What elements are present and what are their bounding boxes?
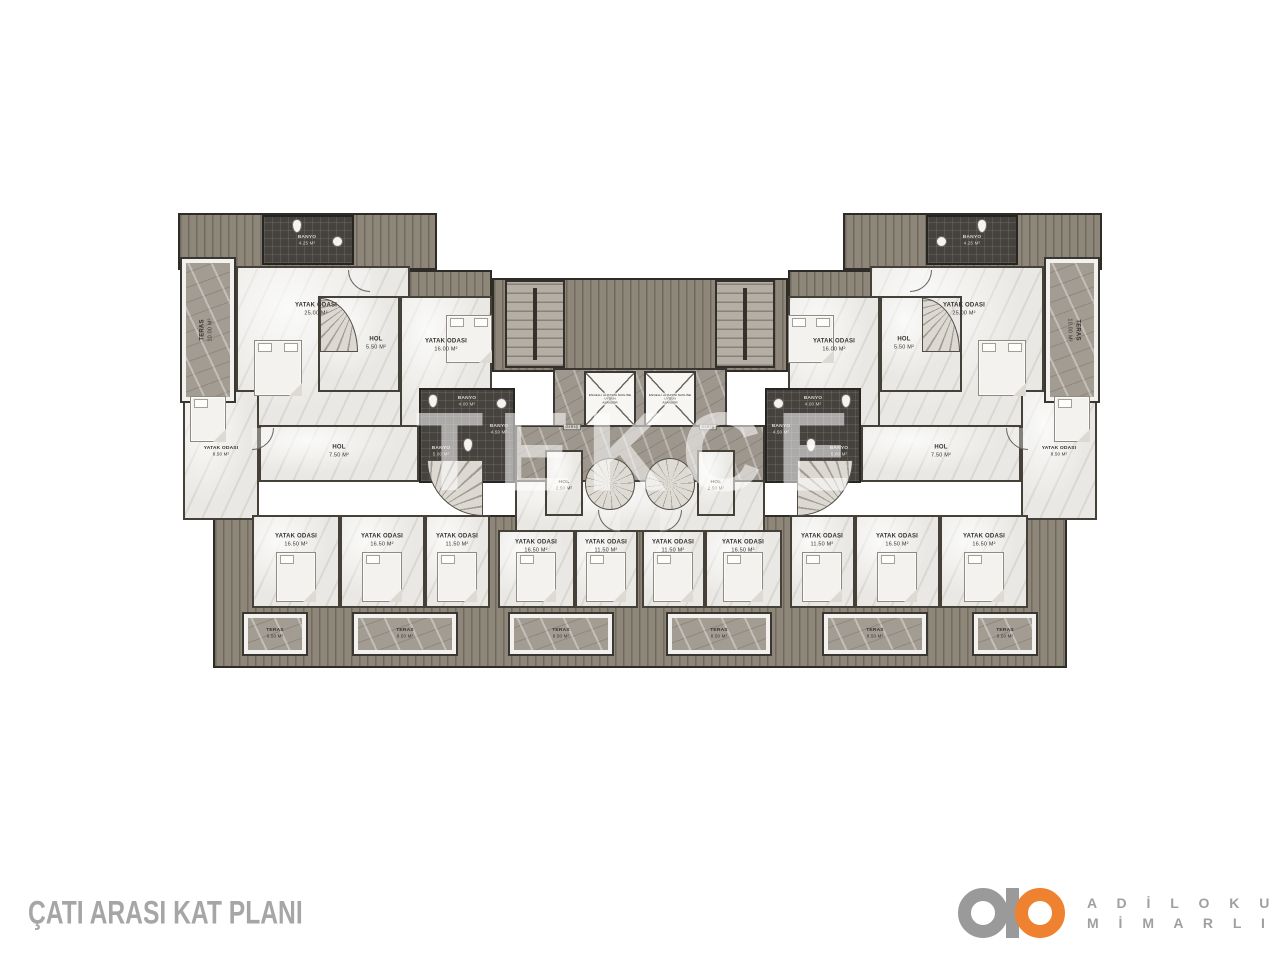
bed [190, 396, 226, 442]
plan-title: ÇATI ARASI KAT PLANI [28, 895, 303, 932]
room-label: BANYO4.50 M² [772, 424, 791, 436]
room-label: YATAK ODASI16.00 M² [813, 339, 855, 354]
bed [802, 552, 842, 602]
terrace-label: TERAS8.50 M² [710, 628, 728, 640]
spiral-stairs-left [585, 458, 635, 510]
terrace-label: TERAS8.50 M² [866, 628, 884, 640]
company-logo: A D İ L O K U R M İ M A R L I K [958, 888, 1280, 938]
bed [653, 552, 693, 602]
logo-a-icon [958, 888, 1008, 938]
bed [877, 552, 917, 602]
room-label: BANYO4.50 M² [490, 424, 509, 436]
room-label: YATAK ODASI11.50 M² [585, 540, 627, 555]
sink-icon [332, 236, 343, 247]
spiral-stairs-right [645, 458, 695, 510]
room-label: BANYO4.00 M² [458, 396, 477, 408]
room-label: HOL5.50 M² [366, 337, 386, 352]
room-label: YATAK ODASI11.50 M² [801, 534, 843, 549]
room-label: HOL7.50 M² [931, 445, 951, 460]
bed [586, 552, 626, 602]
elevator-left: ENGELLİ ve HASTA NAKLİNE UYGUN ASANSÖR [584, 371, 636, 427]
room-label: YATAK ODASI11.50 M² [436, 534, 478, 549]
terrace-label: TERAS8.50 M² [396, 628, 414, 640]
terrace-label: TERAS6.50 M² [266, 628, 284, 640]
company-name: A D İ L O K U R M İ M A R L I K [1087, 893, 1280, 934]
bed [362, 552, 402, 602]
stair-rail [743, 288, 747, 360]
entrance-label-left: GİRİŞ [563, 424, 581, 430]
company-name-line1: A D İ L O K U R [1087, 893, 1280, 913]
room-label: YATAK ODASI16.50 M² [963, 534, 1005, 549]
bed [437, 552, 477, 602]
stair-rail [533, 288, 537, 360]
floor-plan: ENGELLİ ve HASTA NAKLİNE UYGUN ASANSÖR E… [0, 0, 1280, 960]
room-label: YATAK ODASI16.50 M² [361, 534, 403, 549]
room-label: HOL2.50 M² [708, 480, 724, 492]
room-label: HOL2.50 M² [556, 480, 572, 492]
terrace-label: TERAS8.50 M² [552, 628, 570, 640]
bed [964, 552, 1004, 602]
bed [978, 340, 1026, 396]
logo-o-icon [1015, 888, 1065, 938]
room-label: BANYO5.00 M² [830, 446, 849, 458]
bed [723, 552, 763, 602]
wing-stairs-left [427, 460, 483, 516]
terrace-label: TERAS6.50 M² [996, 628, 1014, 640]
room-label: YATAK ODASI8.50 M² [204, 446, 239, 458]
company-name-line2: M İ M A R L I K [1087, 913, 1280, 933]
elevator-right: ENGELLİ ve HASTA NAKLİNE UYGUN ASANSÖR [644, 371, 696, 427]
room-label: HOL5.50 M² [894, 337, 914, 352]
room-label: BANYO5.00 M² [432, 446, 451, 458]
wing-stairs-right [797, 460, 853, 516]
room-label: BANYO4.25 M² [963, 235, 982, 247]
elevator-label: ENGELLİ ve HASTA NAKLİNE UYGUN ASANSÖR [648, 393, 691, 405]
room-label: YATAK ODASI11.50 M² [652, 540, 694, 555]
room-label: YATAK ODASI25.00 M² [295, 303, 337, 318]
room-label: BANYO4.25 M² [298, 235, 317, 247]
room-label: TERAS10.00 M² [1066, 318, 1081, 341]
room-label: TERAS10.00 M² [200, 318, 215, 341]
bed [276, 552, 316, 602]
bed [1054, 396, 1090, 442]
bed [516, 552, 556, 602]
room-label: YATAK ODASI16.50 M² [515, 540, 557, 555]
sink-icon [773, 398, 784, 409]
room-label: HOL7.50 M² [329, 445, 349, 460]
room-label: YATAK ODASI8.50 M² [1042, 446, 1077, 458]
room-label: YATAK ODASI16.00 M² [425, 339, 467, 354]
entrance-label-right: GİRİŞ [699, 424, 717, 430]
bed [254, 340, 302, 396]
room-label: YATAK ODASI16.50 M² [722, 540, 764, 555]
room-label: BANYO4.00 M² [804, 396, 823, 408]
elevator-label: ENGELLİ ve HASTA NAKLİNE UYGUN ASANSÖR [588, 393, 631, 405]
room-label: YATAK ODASI16.50 M² [876, 534, 918, 549]
stair-hall-right [715, 280, 775, 368]
room-label: YATAK ODASI25.00 M² [943, 303, 985, 318]
room-label: YATAK ODASI16.50 M² [275, 534, 317, 549]
stair-hall-left [505, 280, 565, 368]
sink-icon [496, 398, 507, 409]
sink-icon [936, 236, 947, 247]
